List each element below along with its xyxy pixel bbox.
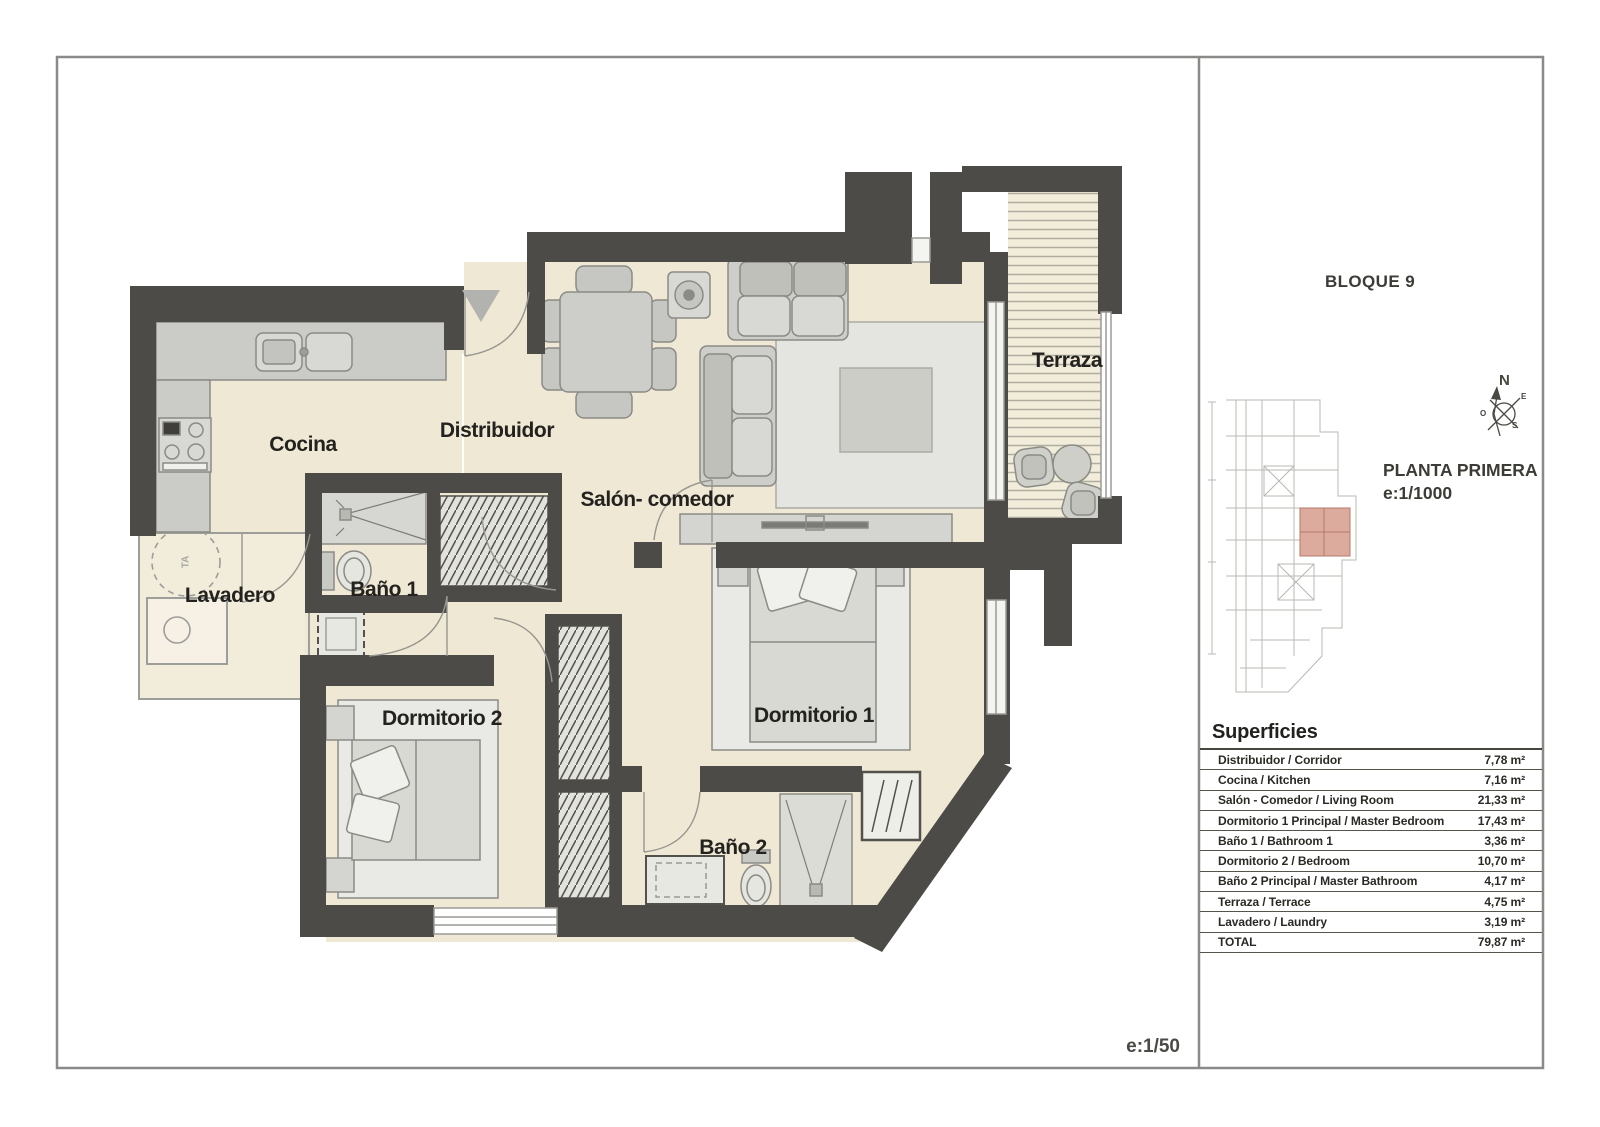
room-label-cocina: Cocina — [269, 433, 337, 457]
surfaces-title: Superficies — [1200, 716, 1542, 748]
plan-name: PLANTA PRIMERA — [1383, 460, 1538, 481]
block-title: BLOQUE 9 — [1325, 272, 1415, 292]
room-label-distribuidor: Distribuidor — [440, 419, 554, 443]
row-value: 17,43 m² — [1478, 814, 1525, 828]
row-label: Distribuidor / Corridor — [1218, 753, 1342, 767]
row-value: 4,17 m² — [1484, 874, 1525, 888]
plan-scale-note: e:1/50 — [1040, 1036, 1180, 1058]
row-value: 7,78 m² — [1484, 753, 1525, 767]
row-value: 79,87 m² — [1478, 935, 1525, 949]
row-value: 3,19 m² — [1484, 915, 1525, 929]
compass-south-label: S — [1512, 421, 1517, 430]
table-row: Dormitorio 1 Principal / Master Bedroom1… — [1200, 811, 1542, 831]
room-label-bano1: Baño 1 — [350, 578, 418, 602]
row-label: Lavadero / Laundry — [1218, 915, 1327, 929]
row-value: 4,75 m² — [1484, 895, 1525, 909]
table-row: Distribuidor / Corridor7,78 m² — [1200, 750, 1542, 770]
table-row: Terraza / Terrace4,75 m² — [1200, 892, 1542, 912]
compass-east-label: E — [1521, 392, 1526, 401]
table-row: Baño 1 / Bathroom 13,36 m² — [1200, 831, 1542, 851]
room-label-salon: Salón- comedor — [580, 488, 733, 512]
table-row-total: TOTAL79,87 m² — [1200, 933, 1542, 953]
row-label: Baño 2 Principal / Master Bathroom — [1218, 874, 1417, 888]
row-value: 10,70 m² — [1478, 854, 1525, 868]
row-label: Dormitorio 1 Principal / Master Bedroom — [1218, 814, 1444, 828]
table-row: Dormitorio 2 / Bedroom10,70 m² — [1200, 851, 1542, 871]
surfaces-rows: Distribuidor / Corridor7,78 m² Cocina / … — [1200, 748, 1542, 953]
surfaces-table: Superficies Distribuidor / Corridor7,78 … — [1200, 716, 1542, 953]
row-label: Dormitorio 2 / Bedroom — [1218, 854, 1350, 868]
row-value: 3,36 m² — [1484, 834, 1525, 848]
compass-west-label: O — [1480, 409, 1486, 418]
row-label: Baño 1 / Bathroom 1 — [1218, 834, 1333, 848]
table-row: Salón - Comedor / Living Room21,33 m² — [1200, 791, 1542, 811]
plan-scale: e:1/1000 — [1383, 483, 1452, 504]
row-label: Salón - Comedor / Living Room — [1218, 793, 1394, 807]
compass-north-label: N — [1499, 372, 1510, 389]
row-label: Terraza / Terrace — [1218, 895, 1311, 909]
room-label-terraza: Terraza — [1032, 349, 1102, 373]
row-value: 7,16 m² — [1484, 773, 1525, 787]
table-row: Baño 2 Principal / Master Bathroom4,17 m… — [1200, 872, 1542, 892]
lavadero-tag: TA — [181, 556, 192, 569]
room-label-dormitorio2: Dormitorio 2 — [382, 707, 502, 731]
room-label-dormitorio1: Dormitorio 1 — [754, 704, 874, 728]
floor-plan-drawing — [0, 0, 1600, 1127]
row-label: Cocina / Kitchen — [1218, 773, 1310, 787]
room-label-bano2: Baño 2 — [699, 836, 767, 860]
room-label-lavadero: Lavadero — [185, 584, 275, 608]
row-value: 21,33 m² — [1478, 793, 1525, 807]
table-row: Lavadero / Laundry3,19 m² — [1200, 912, 1542, 932]
row-label: TOTAL — [1218, 935, 1256, 949]
plan-sheet: Cocina Distribuidor Salón- comedor Terra… — [0, 0, 1600, 1127]
table-row: Cocina / Kitchen7,16 m² — [1200, 770, 1542, 790]
